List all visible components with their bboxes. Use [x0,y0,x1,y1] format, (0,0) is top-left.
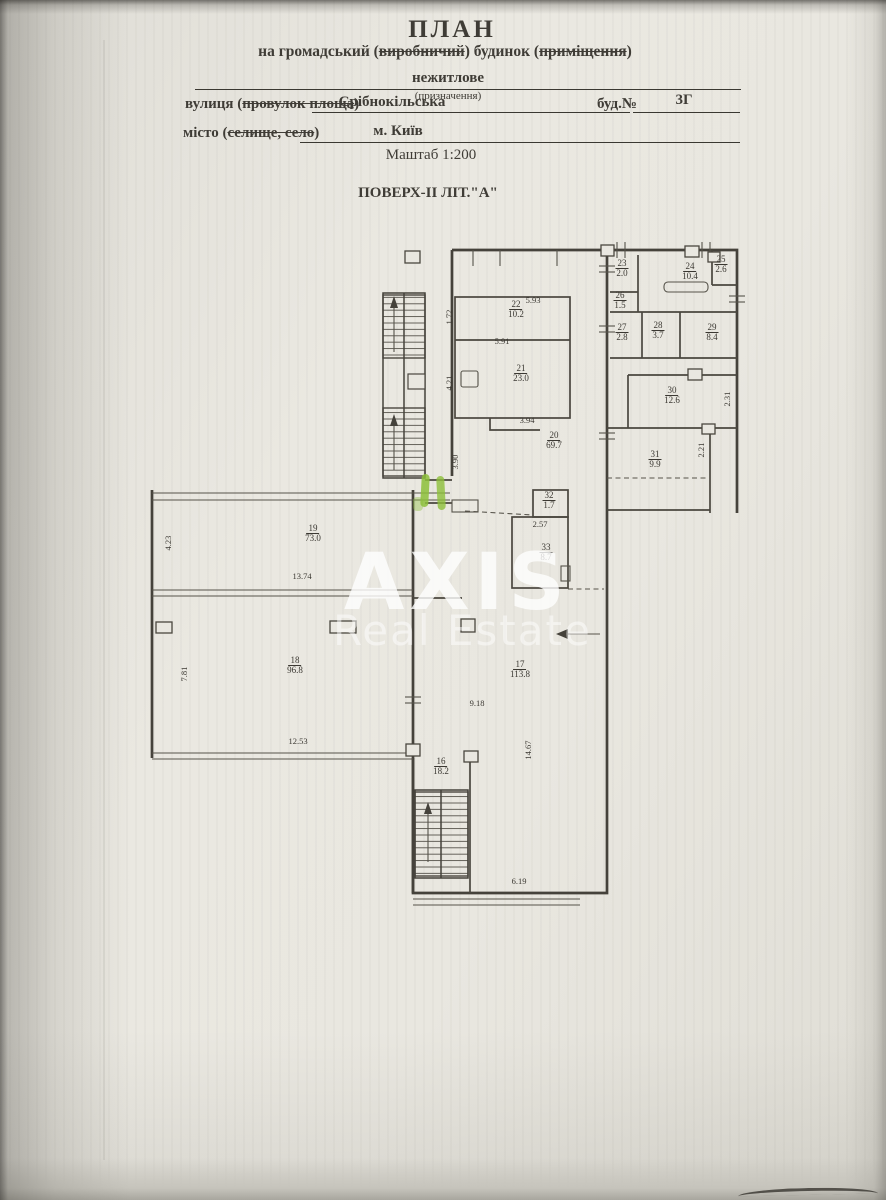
room-label-24: 2410.4 [682,262,698,282]
dim-room20-left: 3.90 [450,444,460,480]
dim-room21-width: 5.91 [484,336,520,346]
staircase-left [383,293,425,478]
dim-room17-right: 14.67 [523,732,533,768]
dim-room31-right: 2.21 [696,432,706,468]
green-highlighter-smudge [413,497,423,511]
room-label-18: 1896.8 [287,656,303,676]
room-label-19: 1973.0 [305,524,321,544]
dim-room21-left: 4.21 [444,365,454,401]
dim-room18-left: 7.81 [179,656,189,692]
dim-room22-width: 5.93 [515,295,551,305]
dim-room19-width: 13.74 [284,571,320,581]
scanned-floor-plan-page: ПЛАН на громадський (виробничий) будинок… [0,0,886,1200]
dim-room17-width: 9.18 [459,698,495,708]
dim-room19-left: 4.23 [163,525,173,561]
room-label-23: 232.0 [616,259,629,279]
dashed-lines [465,478,708,589]
room-label-20: 2069.7 [546,431,562,451]
dim-room20-top: 3.94 [509,415,545,425]
dim-room30-right: 2.31 [722,381,732,417]
room-label-16: 1618.2 [433,757,449,777]
room-label-21: 2123.0 [513,364,529,384]
entrance-arrow-icon [556,629,568,639]
floor-plan-drawing [0,0,886,1200]
room-label-29: 298.4 [706,323,719,343]
green-highlighter-mark [436,476,446,510]
room-label-28: 283.7 [652,321,665,341]
dim-room33-top: 2.57 [522,519,558,529]
dim-room18-width: 12.53 [280,736,316,746]
room-label-31: 319.9 [649,450,662,470]
room-label-27: 272.8 [616,323,629,343]
room-label-26: 261.5 [614,291,627,311]
room-label-32: 321.7 [543,491,556,511]
room-label-33: 338.7 [540,543,553,563]
room-label-17: 17113.8 [510,660,530,680]
room-label-30: 3012.6 [664,386,680,406]
dim-bottom-width: 6.19 [501,876,537,886]
staircase-bottom [415,790,468,878]
room-label-25: 252.6 [715,255,728,275]
dim-room22-left: 1.72 [444,299,454,335]
